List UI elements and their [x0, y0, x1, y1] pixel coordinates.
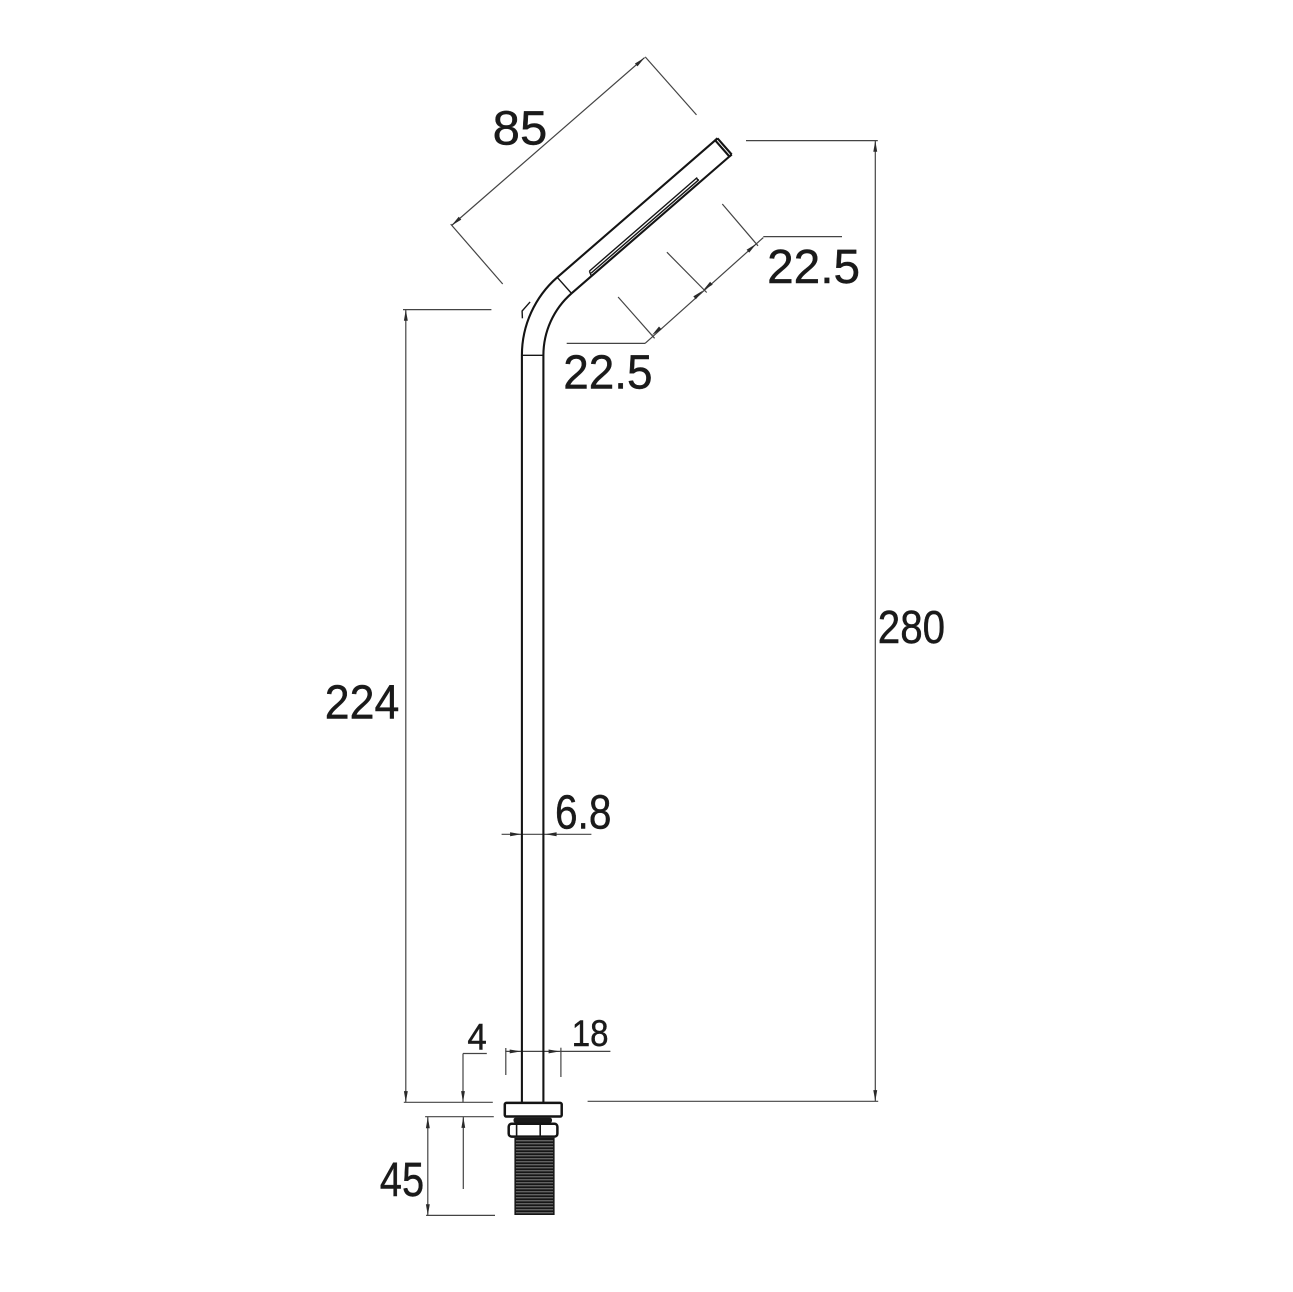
svg-text:4: 4: [467, 1016, 486, 1057]
svg-text:22.5: 22.5: [563, 347, 652, 400]
svg-text:6.8: 6.8: [555, 787, 611, 840]
svg-text:280: 280: [878, 601, 945, 653]
svg-text:22.5: 22.5: [767, 241, 860, 294]
svg-text:85: 85: [493, 103, 548, 156]
svg-text:18: 18: [572, 1013, 609, 1054]
svg-text:45: 45: [380, 1154, 424, 1207]
svg-text:224: 224: [325, 677, 400, 730]
